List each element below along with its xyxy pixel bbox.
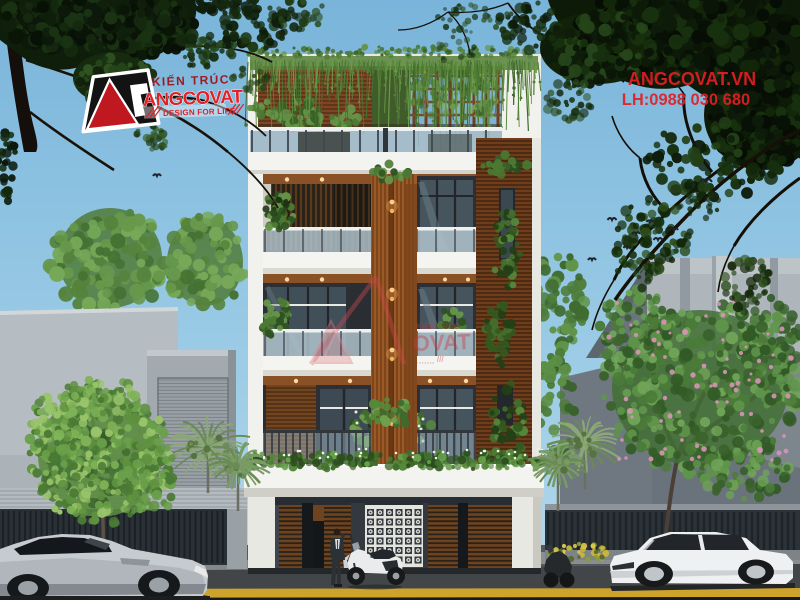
svg-text:OVAT: OVAT: [412, 329, 471, 356]
svg-text:LH:0988 030 680: LH:0988 030 680: [622, 91, 750, 109]
svg-text:¸¸¸¸¸¸¸ ///: ¸¸¸¸¸¸¸ ///: [416, 355, 444, 364]
svg-text:ANGCOVAT.VN: ANGCOVAT.VN: [628, 69, 756, 89]
